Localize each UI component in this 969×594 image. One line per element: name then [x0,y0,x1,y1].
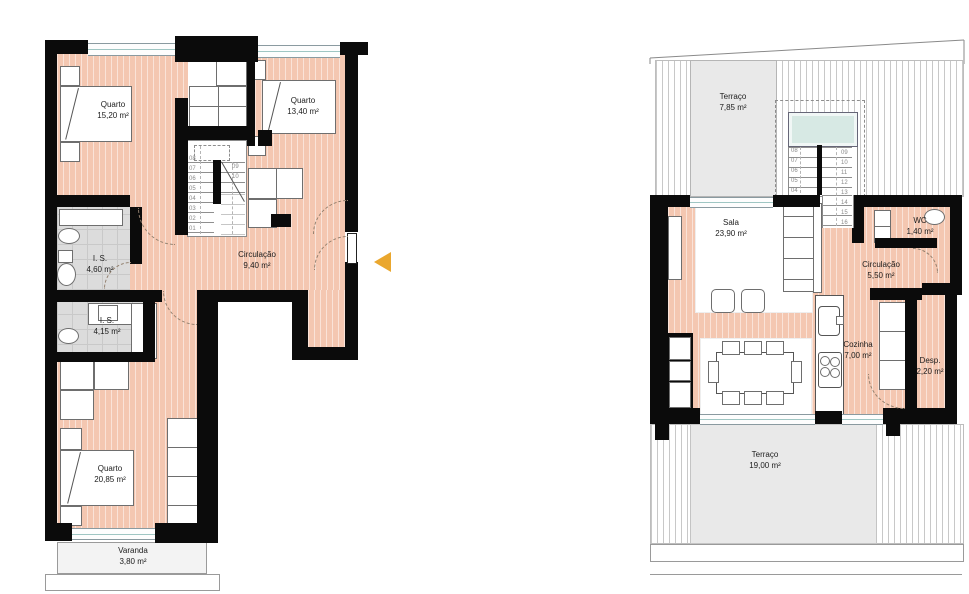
wall [45,523,72,541]
faucet-icon [836,316,844,325]
terrace-side-hatch [650,424,692,544]
room-label-terraco-bottom: Terraço 19,00 m² [749,450,781,472]
step-number: 08 [791,148,798,154]
toilet-icon [58,250,73,263]
room-label-is-1: I. S. 4,60 m² [86,254,113,276]
step-number: 02 [189,216,196,222]
nightstand [60,66,80,86]
wall [247,52,255,146]
wall [655,424,669,440]
burner [830,357,840,367]
wardrobe [167,447,199,477]
step-number: 08 [189,156,196,162]
stair-guide-line [800,147,801,193]
stair-guide-line [836,147,837,226]
washbasin-icon [58,228,80,244]
wardrobe [248,168,277,199]
wall [197,290,308,302]
chair [744,341,762,355]
room-label-quarto-1: Quarto 15,20 m² [97,100,129,122]
step-number: 13 [841,190,848,196]
wardrobe [60,390,94,420]
chair [744,391,762,405]
room-label-desp: Desp. 2,20 m² [916,356,943,378]
chair [722,391,740,405]
window-sliding-door [842,414,883,425]
window [72,528,155,540]
step-number: 14 [841,200,848,206]
toilet-bowl [57,263,76,286]
cabinet [669,337,691,360]
wardrobe [276,168,303,199]
room-label-circulacao-1: Circulação 9,40 m² [238,250,276,272]
step-number: 06 [189,176,196,182]
step-number: 06 [791,168,798,174]
step-number: 03 [189,206,196,212]
wall [922,283,962,295]
terrace-edge-line [650,574,962,575]
step-number: 01 [189,226,196,232]
entrance-arrow-icon [374,252,391,272]
step-number: 12 [841,180,848,186]
dining-table [716,352,794,394]
wall [905,300,917,408]
wall [57,195,130,207]
burner [830,368,840,378]
wardrobe [94,360,129,390]
wall [57,290,162,302]
wardrobe [218,86,247,107]
chair [766,341,784,355]
step-number: 16 [841,220,848,226]
floor-entry-wing [308,290,345,347]
wall [197,302,218,523]
step-number: 04 [189,196,196,202]
wall [155,523,218,543]
wall [886,424,900,436]
room-label-quarto-2: Quarto 13,40 m² [287,96,319,118]
room-label-wc: WC 1,40 m² [906,216,933,238]
burner [820,367,830,377]
bathtub [59,209,123,226]
cabinet [669,382,691,408]
floor-plan-canvas: 08 07 06 05 04 03 02 01 09 10 [0,0,969,594]
window [690,197,773,208]
wall [45,352,155,362]
room-label-terraco-top: Terraço 7,85 m² [719,92,746,114]
sofa-icon [783,279,816,292]
radiator [668,216,682,280]
wall [292,302,308,347]
step-number: 09 [841,150,848,156]
cabinet [669,361,691,381]
step-number: 10 [232,174,239,180]
window [88,43,175,56]
stair-guide-line [232,162,233,234]
window [258,45,340,58]
wall [345,262,358,360]
wall [292,347,358,360]
wall [773,195,820,207]
terrace-bottom [690,424,877,544]
wall [950,207,962,287]
room-label-is-2: I. S. 4,15 m² [93,316,120,338]
wardrobe [60,360,94,390]
washbasin-icon [58,328,79,344]
room-label-varanda: Varanda 3,80 m² [118,546,148,568]
step-number: 10 [841,160,848,166]
room-label-quarto-3: Quarto 20,85 m² [94,464,126,486]
wall [883,408,957,424]
wardrobe [189,86,219,107]
wardrobe [218,106,247,127]
step-number: 15 [841,210,848,216]
window-sliding-door [700,414,815,425]
wall [668,195,690,207]
terrace-top [690,60,777,197]
sofa-icon [783,216,816,280]
wall [271,214,291,227]
entrance-door-leaf [347,233,357,264]
terrace-side-hatch [875,424,964,544]
wall [945,295,957,418]
nightstand [60,428,82,450]
step-number: 09 [232,164,239,170]
sofa-back [813,203,822,293]
room-label-circulacao-2: Circulação 5,50 m² [862,260,900,282]
step-number: 07 [189,166,196,172]
wardrobe [216,60,247,86]
wall [815,411,842,424]
armchair-icon [741,289,765,313]
wall [175,36,258,62]
chair [766,391,784,405]
terrace-rail [650,544,964,562]
skylight [788,112,858,147]
stair-steps-hidden [221,194,245,235]
wardrobe [189,106,219,127]
nightstand [60,142,80,162]
step-number: 04 [791,188,798,194]
room-label-cozinha: Cozinha 7,00 m² [843,340,872,362]
wall [852,195,962,207]
balcony-rail [45,574,220,591]
cabinet [879,302,907,332]
wall [258,130,272,146]
chair [722,341,740,355]
wardrobe [167,476,199,506]
cabinet [879,331,907,361]
chair [708,361,719,383]
burner [820,356,830,366]
step-number: 05 [189,186,196,192]
chair [791,361,802,383]
wall [175,126,247,140]
wardrobe [167,418,199,448]
step-number: 11 [841,170,847,176]
wall [875,238,937,248]
room-label-sala: Sala 23,90 m² [715,218,747,240]
wall [650,195,668,424]
step-number: 05 [791,178,798,184]
step-number: 07 [791,158,798,164]
wall [870,288,922,300]
stair-divider-wall [213,160,221,204]
wall [650,408,700,424]
armchair-icon [711,289,735,313]
wall [45,40,57,540]
wall [175,98,188,235]
stair-guide-line [200,146,201,234]
